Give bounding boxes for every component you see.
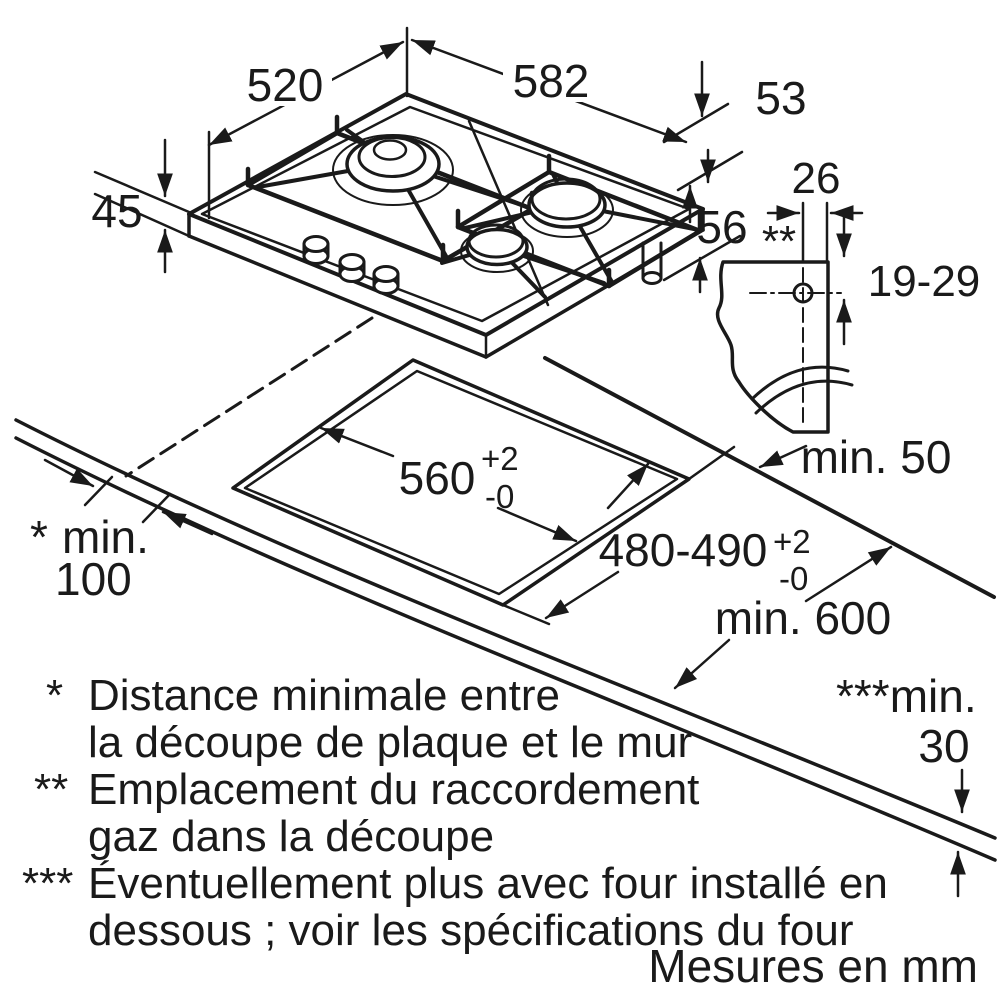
measures-caption: Mesures en mm (648, 940, 978, 992)
hob-height-label: 45 (91, 185, 142, 237)
min-below-label: ***min. (836, 670, 977, 722)
hob-total-width-label: 582 (513, 55, 590, 107)
footnote-star2-marker: ** (34, 765, 68, 814)
cutout-width-tol-plus: +2 (481, 440, 519, 477)
footnotes: * Distance minimale entre la découpe de … (22, 671, 888, 955)
corner-detail: 26 19-29 min. 50 (718, 154, 981, 483)
knob (340, 255, 364, 282)
footnote-star1-marker: * (46, 671, 63, 720)
footnote-star1-line2: la découpe de plaque et le mur (88, 718, 692, 767)
min-side-label: min. 50 (801, 431, 952, 483)
cutout: 560 +2 -0 480-490 +2 -0 (233, 360, 811, 624)
dim-45: 45 (91, 140, 165, 272)
cutout-width-tol-minus: -0 (485, 478, 514, 515)
cutout-depth-label: 480-490 (599, 524, 768, 576)
cutout-width-label: 560 (399, 452, 476, 504)
hob-drawing (95, 94, 703, 357)
dim-min-100: * min. 100 (30, 460, 212, 605)
knob (304, 237, 328, 264)
knob (374, 267, 398, 294)
hole-range-label: 19-29 (868, 257, 981, 306)
dim-min-50: min. 50 (760, 431, 951, 483)
hob-width-label: 520 (247, 59, 324, 111)
footnote-star2-line2: gaz dans la découpe (88, 812, 494, 861)
footnote-star2-line1: Emplacement du raccordement (88, 765, 699, 814)
hob-edge-label: 53 (755, 72, 806, 124)
gas-position-label: 56 (696, 201, 747, 253)
footnote-star3-marker: *** (22, 859, 73, 908)
min-wall-value: 100 (55, 553, 132, 605)
dim-19-29: 19-29 (844, 216, 980, 344)
footnote-star1-line1: Distance minimale entre (88, 671, 560, 720)
gas-position-marker: ** (762, 217, 796, 266)
min-below-value: 30 (918, 720, 969, 772)
footnote-star3-line1: Éventuellement plus avec four installé e… (88, 859, 888, 908)
hole-offset-label: 26 (792, 154, 841, 203)
cutout-depth-tol-plus: +2 (773, 523, 811, 560)
installation-diagram: 560 +2 -0 480-490 +2 -0 (0, 0, 1000, 1000)
min-worktop-label: min. 600 (715, 592, 891, 644)
min-wall-marker: * (30, 511, 48, 563)
